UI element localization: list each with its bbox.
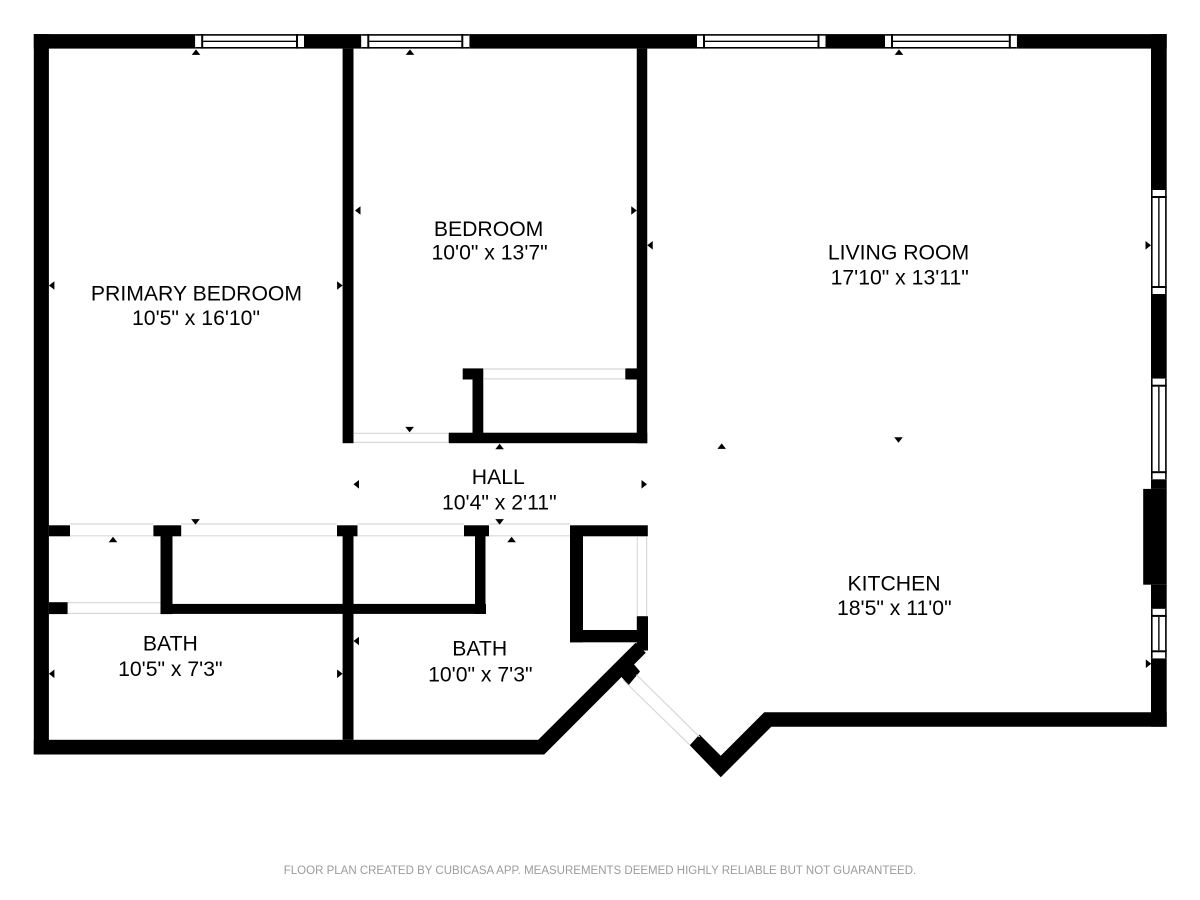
svg-text:17'10" x 13'11": 17'10" x 13'11" (831, 266, 969, 289)
svg-text:PRIMARY BEDROOM: PRIMARY BEDROOM (91, 282, 302, 305)
svg-text:10'5" x 16'10": 10'5" x 16'10" (132, 307, 260, 330)
svg-text:HALL: HALL (472, 466, 525, 489)
svg-text:10'5" x 7'3": 10'5" x 7'3" (118, 658, 222, 681)
svg-text:10'4" x 2'11": 10'4" x 2'11" (442, 492, 557, 515)
svg-text:10'0" x 7'3": 10'0" x 7'3" (428, 663, 532, 686)
svg-text:LIVING ROOM: LIVING ROOM (828, 242, 969, 265)
svg-text:BATH: BATH (452, 638, 507, 661)
svg-text:BATH: BATH (143, 633, 198, 656)
svg-text:10'0" x 13'7": 10'0" x 13'7" (431, 242, 547, 265)
svg-text:FLOOR PLAN CREATED BY CUBICASA: FLOOR PLAN CREATED BY CUBICASA APP. MEAS… (284, 865, 916, 877)
svg-text:KITCHEN: KITCHEN (848, 573, 941, 596)
svg-text:BEDROOM: BEDROOM (434, 218, 543, 241)
svg-text:18'5" x 11'0": 18'5" x 11'0" (837, 597, 952, 620)
